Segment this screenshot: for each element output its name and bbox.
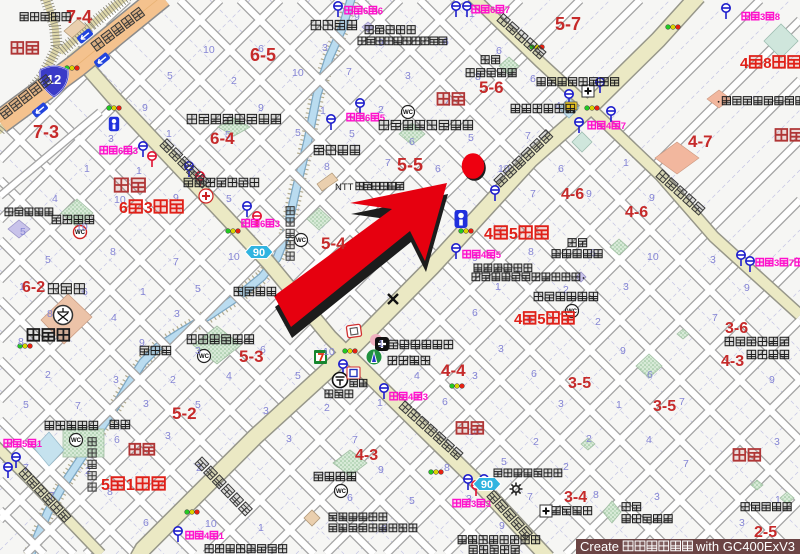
svg-text:3: 3 [471, 499, 476, 510]
svg-text:5-5: 5-5 [397, 155, 423, 175]
svg-text:3: 3 [275, 219, 280, 230]
svg-text:6: 6 [530, 73, 536, 85]
svg-text:4: 4 [481, 250, 487, 261]
svg-text:7: 7 [346, 66, 352, 78]
svg-text:4-7: 4-7 [688, 132, 713, 151]
svg-text:3: 3 [108, 133, 114, 145]
svg-text:1: 1 [320, 105, 326, 117]
svg-text:3: 3 [774, 436, 780, 448]
svg-text:6: 6 [347, 492, 353, 504]
svg-text:5: 5 [501, 456, 507, 468]
svg-text:7: 7 [712, 312, 718, 324]
svg-text:5: 5 [22, 439, 28, 450]
svg-text:6-4: 6-4 [210, 129, 235, 148]
svg-text:1: 1 [136, 165, 142, 177]
svg-text:1: 1 [84, 163, 90, 175]
svg-text:6: 6 [531, 368, 537, 380]
svg-text:3: 3 [739, 517, 745, 529]
svg-text:3: 3 [263, 405, 269, 417]
svg-text:8: 8 [528, 246, 534, 258]
svg-text:3: 3 [133, 146, 138, 157]
svg-text:WC: WC [336, 489, 347, 495]
svg-text:1: 1 [140, 286, 146, 298]
svg-text:2: 2 [45, 369, 51, 381]
svg-text:5: 5 [468, 132, 474, 144]
svg-text:4-3: 4-3 [721, 353, 744, 370]
svg-text:6: 6 [260, 219, 265, 230]
svg-text:5: 5 [509, 226, 518, 243]
svg-text:7: 7 [621, 121, 626, 132]
svg-text:with GC400ExV3: with GC400ExV3 [695, 539, 795, 554]
svg-text:7: 7 [679, 396, 685, 408]
svg-text:1: 1 [258, 522, 264, 534]
svg-text:90: 90 [481, 479, 493, 491]
svg-text:7: 7 [527, 491, 533, 503]
svg-text:8: 8 [47, 308, 53, 320]
svg-text:WC: WC [403, 110, 414, 116]
svg-text:10: 10 [205, 518, 217, 530]
svg-text:3: 3 [322, 42, 328, 54]
svg-text:2: 2 [595, 316, 601, 328]
svg-text:3: 3 [195, 345, 201, 357]
svg-text:4-3: 4-3 [355, 447, 378, 464]
svg-text:7: 7 [525, 130, 531, 142]
svg-text:2: 2 [231, 75, 237, 87]
svg-text:3-6: 3-6 [725, 320, 748, 337]
svg-text:9: 9 [769, 374, 775, 386]
svg-text:NTT: NTT [335, 182, 354, 193]
svg-text:1: 1 [219, 531, 225, 542]
svg-text:1: 1 [37, 439, 43, 450]
svg-text:2: 2 [170, 374, 176, 386]
svg-text:1: 1 [495, 281, 501, 293]
svg-text:2: 2 [563, 461, 569, 473]
svg-text:5: 5 [295, 370, 301, 382]
svg-text:3: 3 [286, 433, 292, 445]
svg-text:4: 4 [204, 531, 210, 542]
svg-text:3-5: 3-5 [653, 398, 676, 415]
svg-text:5: 5 [101, 477, 110, 494]
svg-text:5: 5 [409, 495, 415, 507]
svg-text:5: 5 [349, 128, 355, 140]
svg-text:8: 8 [593, 489, 599, 501]
svg-text:6: 6 [647, 369, 653, 381]
svg-text:4: 4 [646, 434, 652, 446]
svg-text:5-3: 5-3 [239, 347, 264, 366]
svg-text:7-3: 7-3 [33, 122, 59, 142]
svg-text:5-2: 5-2 [172, 404, 197, 423]
svg-text:9: 9 [378, 464, 384, 476]
svg-text:2: 2 [533, 436, 539, 448]
svg-text:4: 4 [111, 312, 117, 324]
svg-text:3: 3 [760, 12, 765, 23]
svg-text:5-6: 5-6 [479, 78, 504, 97]
svg-text:9: 9 [142, 102, 148, 114]
svg-text:3: 3 [654, 491, 660, 503]
svg-text:4: 4 [484, 226, 493, 243]
svg-text:4-4: 4-4 [441, 361, 466, 380]
svg-text:4: 4 [408, 392, 414, 403]
svg-text:3: 3 [405, 70, 411, 82]
svg-text:1: 1 [616, 399, 622, 411]
svg-text:9: 9 [649, 192, 655, 204]
svg-text:8: 8 [110, 246, 116, 258]
svg-text:10: 10 [647, 251, 659, 263]
svg-text:3: 3 [165, 430, 171, 442]
svg-text:10: 10 [292, 67, 304, 79]
svg-text:5: 5 [195, 283, 201, 295]
svg-text:8: 8 [763, 55, 771, 72]
svg-text:3: 3 [558, 398, 564, 410]
svg-text:6-5: 6-5 [250, 45, 276, 65]
svg-text:1: 1 [377, 397, 383, 409]
svg-text:5: 5 [167, 70, 173, 82]
svg-text:5: 5 [496, 250, 502, 261]
svg-text:10: 10 [323, 346, 335, 358]
svg-text:4: 4 [226, 370, 232, 382]
svg-text:6: 6 [435, 163, 441, 175]
svg-text:4: 4 [52, 193, 58, 205]
svg-text:4: 4 [740, 55, 749, 72]
svg-text:9: 9 [744, 282, 750, 294]
svg-text:5: 5 [45, 254, 51, 266]
svg-text:2: 2 [324, 402, 330, 414]
svg-text:8: 8 [444, 462, 450, 474]
svg-text:3: 3 [174, 308, 180, 320]
svg-text:7: 7 [530, 188, 536, 200]
svg-text:5: 5 [226, 193, 232, 205]
svg-text:4: 4 [606, 121, 612, 132]
svg-text:6: 6 [143, 517, 149, 529]
svg-text:10: 10 [228, 251, 240, 263]
svg-text:9: 9 [586, 188, 592, 200]
svg-text:8: 8 [324, 161, 330, 173]
svg-text:6: 6 [363, 6, 368, 17]
svg-text:5: 5 [295, 127, 301, 139]
svg-text:6: 6 [114, 434, 120, 446]
svg-text:3: 3 [144, 200, 153, 217]
svg-text:7: 7 [683, 458, 689, 470]
svg-text:3-5: 3-5 [568, 375, 591, 392]
svg-text:90: 90 [253, 247, 265, 259]
svg-text:8: 8 [18, 336, 24, 348]
svg-text:5: 5 [537, 311, 545, 328]
svg-text:5-7: 5-7 [555, 14, 581, 34]
svg-text:3: 3 [498, 343, 504, 355]
svg-text:7: 7 [173, 256, 179, 268]
svg-text:7: 7 [352, 434, 358, 446]
svg-text:9: 9 [258, 102, 264, 114]
svg-text:5-4: 5-4 [321, 234, 346, 253]
svg-text:3: 3 [710, 254, 716, 266]
svg-text:3: 3 [623, 281, 629, 293]
svg-text:2: 2 [586, 433, 592, 445]
svg-text:6: 6 [558, 163, 564, 175]
svg-text:3: 3 [143, 398, 149, 410]
svg-text:6: 6 [490, 5, 495, 16]
svg-text:6: 6 [365, 113, 370, 124]
svg-text:3: 3 [113, 374, 119, 386]
svg-text:9: 9 [620, 345, 626, 357]
svg-text:10: 10 [203, 44, 215, 56]
svg-text:7: 7 [385, 157, 391, 169]
svg-text:6: 6 [409, 136, 415, 148]
svg-text:3: 3 [423, 392, 428, 403]
svg-text:8: 8 [775, 12, 780, 23]
svg-text:6: 6 [442, 396, 448, 408]
svg-text:7: 7 [75, 400, 81, 412]
svg-text:3: 3 [774, 258, 779, 269]
svg-text:1: 1 [378, 338, 384, 350]
svg-text:3: 3 [472, 370, 478, 382]
svg-text:6: 6 [119, 200, 128, 217]
svg-text:WC: WC [296, 238, 307, 244]
svg-text:6: 6 [118, 146, 123, 157]
svg-text:1: 1 [126, 477, 135, 494]
svg-text:7: 7 [505, 5, 510, 16]
svg-text:WC: WC [71, 438, 82, 444]
svg-text:6: 6 [472, 307, 478, 319]
svg-text:4-6: 4-6 [625, 204, 648, 221]
svg-text:7: 7 [789, 258, 794, 269]
svg-text:6-2: 6-2 [22, 279, 45, 296]
svg-text:3-4: 3-4 [564, 489, 587, 506]
svg-text:9: 9 [499, 520, 505, 532]
svg-text:4: 4 [514, 311, 523, 328]
svg-text:Create: Create [580, 539, 619, 554]
svg-text:1: 1 [623, 157, 629, 169]
svg-text:4-6: 4-6 [561, 186, 584, 203]
svg-text:5: 5 [23, 399, 29, 411]
svg-text:4: 4 [414, 370, 420, 382]
svg-text:6: 6 [378, 6, 383, 17]
svg-text:5: 5 [20, 226, 26, 238]
